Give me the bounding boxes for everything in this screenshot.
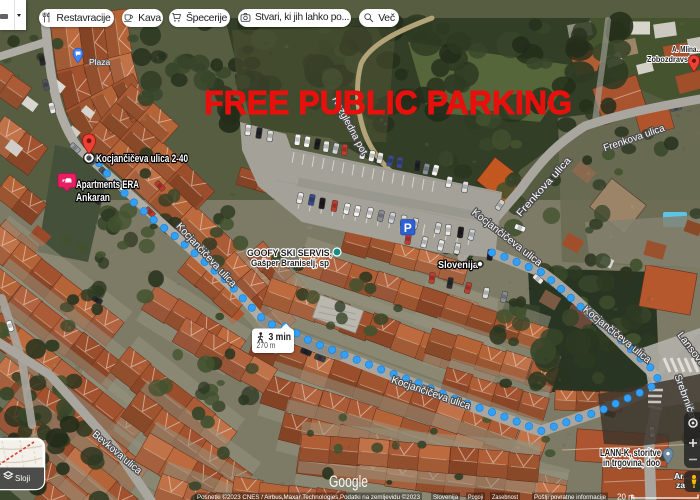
svg-text:P: P: [404, 221, 412, 235]
svg-text:za: za: [676, 480, 685, 490]
svg-text:A. Mlina..: A. Mlina..: [672, 44, 700, 54]
svg-text:Kocjančičeva ulica 2-40: Kocjančičeva ulica 2-40: [96, 153, 188, 165]
svg-text:Apartments ERA: Apartments ERA: [76, 179, 139, 191]
svg-text:Ankaran: Ankaran: [76, 192, 110, 204]
svg-text:Posnetki ©2023 CNES / Airbus,M: Posnetki ©2023 CNES / Airbus,Maxar Techn…: [197, 493, 420, 500]
svg-text:Slovenija: Slovenija: [438, 259, 478, 271]
svg-text:Plaza: Plaza: [89, 57, 111, 67]
svg-text:Gašper Braniselj, sp: Gašper Braniselj, sp: [251, 258, 329, 269]
svg-text:Pošlji povratne informacije: Pošlji povratne informacije: [534, 494, 606, 500]
svg-text:Slovenija: Slovenija: [433, 494, 458, 500]
svg-text:Google: Google: [329, 472, 368, 491]
svg-text:FREE PUBLIC PARKING: FREE PUBLIC PARKING: [204, 84, 572, 121]
svg-text:in trgovina, doo: in trgovina, doo: [603, 458, 660, 469]
svg-text:270 m: 270 m: [257, 340, 276, 350]
svg-text:Sloji: Sloji: [15, 474, 30, 483]
svg-text:Zasebnost: Zasebnost: [492, 494, 518, 500]
svg-text:Pogoji: Pogoji: [468, 494, 483, 500]
